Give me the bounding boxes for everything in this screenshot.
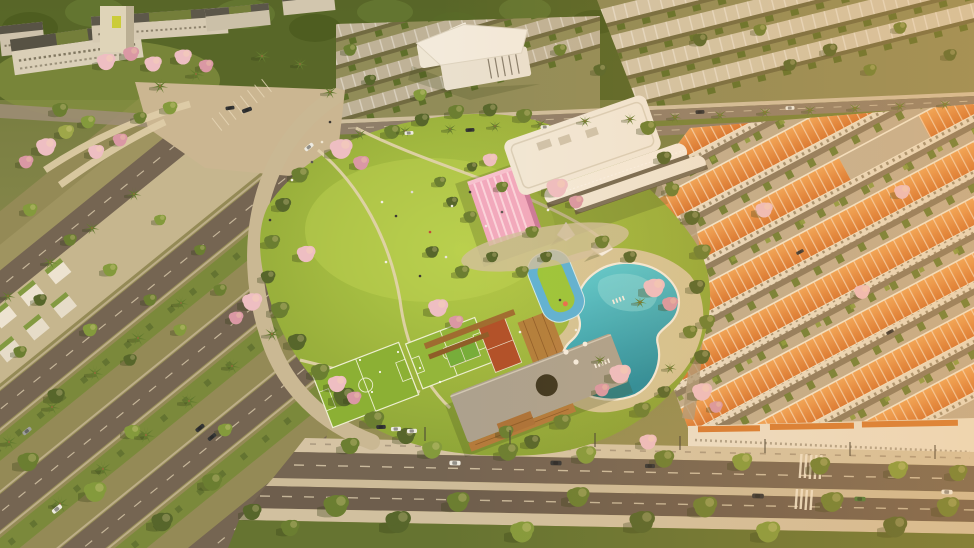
warm-tint xyxy=(0,0,974,548)
aerial-render: Aerial golden-hour rendering of a master… xyxy=(0,0,974,548)
aerial-render-stage: Aerial golden-hour rendering of a master… xyxy=(0,0,974,548)
